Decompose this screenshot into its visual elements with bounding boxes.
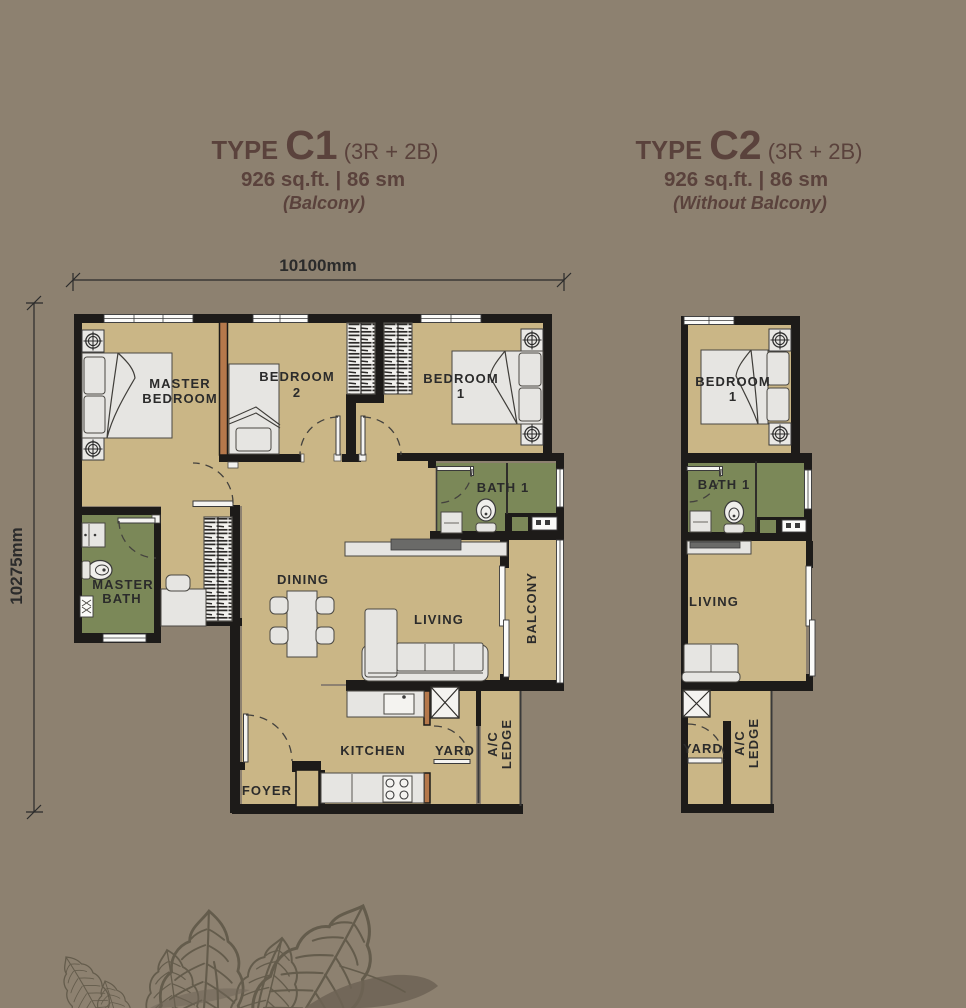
svg-text:LIVING: LIVING <box>414 612 464 627</box>
svg-text:926 sq.ft. | 86 sm: 926 sq.ft. | 86 sm <box>241 168 405 191</box>
svg-text:BEDROOM: BEDROOM <box>695 374 771 389</box>
svg-text:1: 1 <box>457 386 465 401</box>
svg-text:2: 2 <box>293 385 301 400</box>
svg-text:MASTER: MASTER <box>149 376 211 391</box>
svg-text:(Without Balcony): (Without Balcony) <box>673 193 827 213</box>
svg-text:BEDROOM: BEDROOM <box>259 369 335 384</box>
svg-text:FOYER: FOYER <box>242 783 292 798</box>
svg-text:1: 1 <box>729 389 737 404</box>
svg-text:DINING: DINING <box>277 572 329 587</box>
svg-text:LEDGE: LEDGE <box>499 719 514 769</box>
svg-text:BATH: BATH <box>102 591 142 606</box>
svg-text:(Balcony): (Balcony) <box>283 193 365 213</box>
svg-text:BEDROOM: BEDROOM <box>142 391 218 406</box>
svg-text:LIVING: LIVING <box>689 594 739 609</box>
svg-text:LEDGE: LEDGE <box>746 718 761 768</box>
svg-text:YARD: YARD <box>435 743 475 758</box>
svg-text:KITCHEN: KITCHEN <box>340 743 405 758</box>
svg-text:BALCONY: BALCONY <box>524 572 539 644</box>
svg-text:YARD: YARD <box>683 741 723 756</box>
svg-text:10275mm: 10275mm <box>7 527 26 605</box>
svg-text:10100mm: 10100mm <box>279 256 357 275</box>
svg-text:BATH 1: BATH 1 <box>477 480 530 495</box>
svg-text:BEDROOM: BEDROOM <box>423 371 499 386</box>
svg-text:MASTER: MASTER <box>92 577 154 592</box>
svg-text:BATH 1: BATH 1 <box>698 477 751 492</box>
svg-text:A/C: A/C <box>732 730 747 756</box>
svg-text:926 sq.ft. | 86 sm: 926 sq.ft. | 86 sm <box>664 168 828 191</box>
svg-text:A/C: A/C <box>485 731 500 757</box>
